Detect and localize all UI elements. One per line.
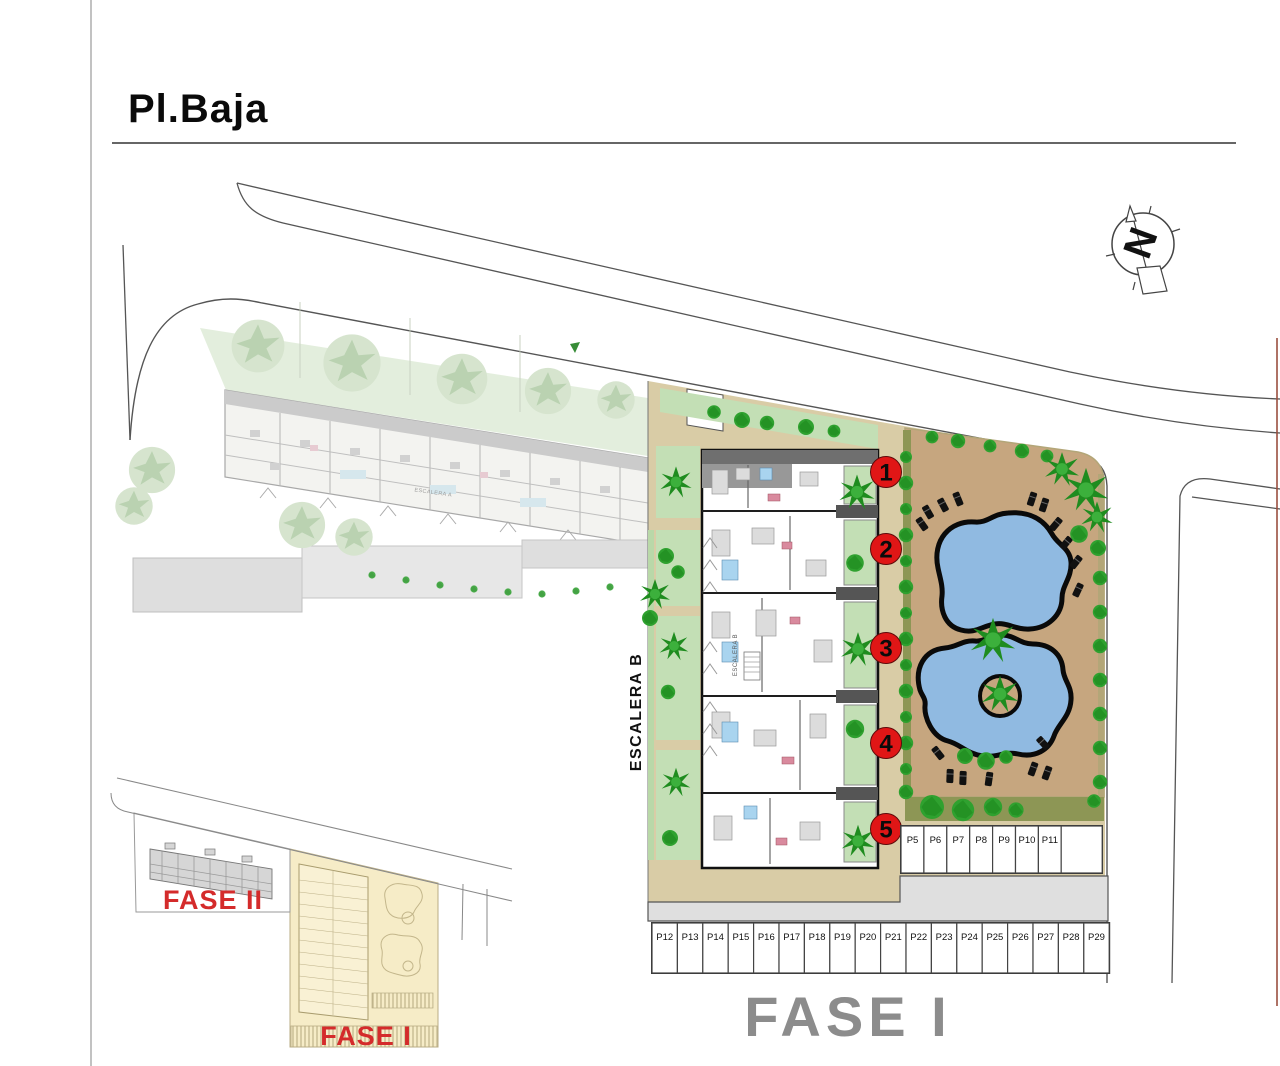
parking-stall: P26 [1008,923,1033,973]
parking-stall: P22 [906,923,931,973]
parking-stall-label: P15 [732,932,749,943]
stairwell-label-inner: ESCALERA B [733,634,739,676]
parking-stall-label: P12 [656,932,673,943]
site-plan-page: Pl.Baja N [0,0,1280,1066]
parking-stall: P12 [652,923,677,973]
parking-stall-label: P24 [961,932,978,943]
parking-stall-label: P29 [1088,932,1105,943]
parking-stall: P11 [1038,826,1061,873]
parking-stall: P13 [677,923,702,973]
parking-stall-label: P25 [986,932,1003,943]
parking-stall-label: P6 [930,835,942,846]
parking-stall: P15 [728,923,753,973]
stairwell-label: ESCALERA B [628,653,645,771]
parking-stall: P14 [703,923,728,973]
parking-stall-empty [1061,826,1102,873]
parking-stall-label: P17 [783,932,800,943]
ghost-driveway-3 [522,540,648,568]
parking-stall: P27 [1033,923,1058,973]
parking-stall-label: P23 [936,932,953,943]
parking-stall-label: P16 [758,932,775,943]
parking-stall-label: P14 [707,932,724,943]
parking-stall-label: P13 [682,932,699,943]
parking-row-upper: P5P6P7P8P9P10P11 [901,826,1061,873]
parking-stall: P17 [779,923,804,973]
parking-stall-label: P22 [910,932,927,943]
site-plan-svg: Pl.Baja N [0,0,1280,1066]
fase2-ghost-area: ESCALERA A [115,302,648,612]
main-building: ESCALERA B [702,450,878,868]
parking-stall: P19 [830,923,855,973]
parking-stall: P28 [1058,923,1083,973]
unit-marker-number: 2 [879,537,892,564]
unit-marker-4[interactable]: 4 [871,728,902,759]
parking-stall-label: P18 [809,932,826,943]
parking-stall: P18 [804,923,829,973]
parking-stall: P8 [970,826,993,873]
street-right-inner [1192,497,1280,509]
parking-stall: P6 [924,826,947,873]
unit-marker-number: 4 [879,731,893,758]
parking-stall: P16 [754,923,779,973]
pool-garden [903,428,1113,821]
parking-row-lower: P12P13P14P15P16P17P18P19P20P21P22P23P24P… [652,923,1109,973]
ghost-tree-mark [570,342,580,353]
parking-stall-label: P9 [998,835,1010,846]
parking-stall: P29 [1084,923,1109,973]
parking-stall: P21 [881,923,906,973]
parking-stall-label: P8 [975,835,987,846]
north-compass: N [1106,206,1180,294]
unit-marker-number: 1 [879,460,892,487]
parking-stall: P23 [931,923,956,973]
inset-fase2-label: FASE II [163,885,263,915]
parking-stall-label: P10 [1019,835,1036,846]
parking-stall-label: P7 [952,835,964,846]
street-right-outer [1172,479,1280,983]
parking-stall-label: P21 [885,932,902,943]
building-roof-band [702,450,878,464]
unit-marker-5[interactable]: 5 [871,814,902,845]
compass-needle-tail [1137,266,1167,294]
unit-marker-number: 5 [879,817,892,844]
parking-stall: P7 [947,826,970,873]
inset-parking-hatch-small [372,993,433,1008]
page-title: Pl.Baja [128,87,268,131]
private-terraces [844,466,876,862]
parking-stall-label: P28 [1063,932,1080,943]
parking-stall: P10 [1016,826,1039,873]
parking-stall-label: P26 [1012,932,1029,943]
compass-north-letter: N [1115,222,1166,264]
parking-stall: P24 [957,923,982,973]
unit-marker-1[interactable]: 1 [871,457,902,488]
unit-marker-2[interactable]: 2 [871,534,902,565]
parking-stall-label: P19 [834,932,851,943]
parking-stall: P25 [982,923,1007,973]
parking-stall: P20 [855,923,880,973]
parking-stall: P9 [993,826,1016,873]
parking-stall-label: P27 [1037,932,1054,943]
inset-fase1-label: FASE I [320,1021,412,1051]
street-left-segment [123,245,130,440]
inset-key-map: FASE II FASE I [111,778,512,1051]
ghost-driveway-2 [302,546,522,598]
parking-stall-label: P5 [907,835,919,846]
parking-stall: P5 [901,826,924,873]
phase-large-label: FASE I [744,985,951,1048]
unit-marker-3[interactable]: 3 [871,633,902,664]
parking-stall-label: P20 [859,932,876,943]
unit-marker-number: 3 [879,636,892,663]
ghost-driveway-1 [133,558,302,612]
pool-upper [937,513,1071,631]
parking-stall-label: P11 [1042,835,1058,846]
